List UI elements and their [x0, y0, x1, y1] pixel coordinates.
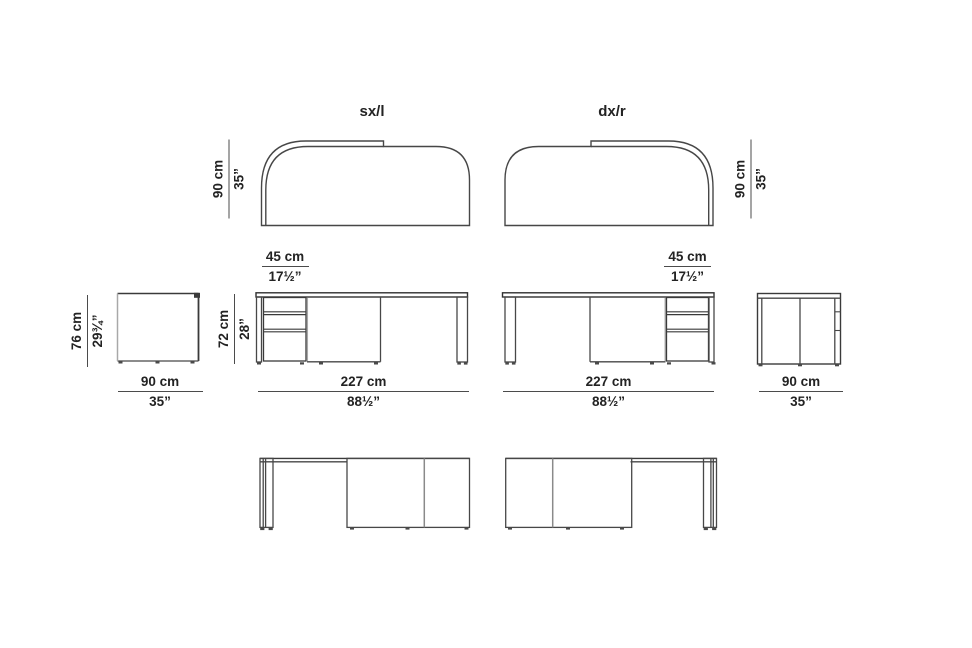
dim-cm: 72 cm — [217, 294, 234, 364]
dim-pedestal-right: 45 cm 17½” — [664, 250, 711, 284]
dim-cm: 76 cm — [70, 295, 87, 367]
view-side-left — [118, 293, 201, 364]
desk-top-inner-edge — [266, 147, 384, 226]
drawer-separations — [264, 312, 307, 332]
dim-cm: 227 cm — [258, 375, 469, 392]
dim-cm: 45 cm — [664, 250, 711, 267]
dim-pedestal-left: 45 cm 17½” — [262, 250, 309, 284]
desk-top-inner-edge — [591, 147, 709, 226]
view-side-right — [758, 294, 841, 367]
dim-inch: 17½” — [664, 267, 711, 284]
left-leg — [260, 458, 273, 527]
view-front-sxl — [256, 293, 468, 365]
dim-cm: 90 cm — [733, 139, 750, 218]
desktop — [256, 293, 468, 297]
drawer-profile-marks — [835, 312, 841, 331]
dim-cm: 90 cm — [212, 139, 229, 218]
desk-top-outline — [262, 141, 470, 226]
label-right-version: dx/r — [572, 103, 652, 120]
left-end-panel — [257, 297, 262, 362]
dim-desk-width-left: 227 cm 88½” — [258, 375, 469, 409]
dim-desk-height: 72 cm 28” — [217, 294, 251, 364]
dim-side-left-height: 76 cm 29¾” — [70, 295, 104, 367]
dim-inch: 88½” — [258, 392, 469, 409]
feet — [505, 362, 715, 364]
drawing-canvas: sx/l dx/r 90 cm 35” 90 cm 35” 76 cm 29¾”… — [0, 0, 972, 648]
desktop — [503, 293, 715, 297]
drawer-separations — [667, 312, 709, 332]
dim-top-left-depth: 90 cm 35” — [212, 139, 246, 218]
dim-cm: 90 cm — [759, 375, 843, 392]
dim-inch: 28” — [234, 294, 251, 364]
right-end-panel — [709, 297, 714, 362]
dim-inch: 35” — [759, 392, 843, 409]
left-leg — [505, 297, 516, 362]
dim-inch: 17½” — [262, 267, 309, 284]
view-top-sxl — [262, 141, 470, 226]
right-leg — [704, 458, 717, 527]
feet — [257, 362, 468, 364]
back-panel — [506, 458, 632, 527]
dim-cm: 227 cm — [503, 375, 714, 392]
dim-inch: 35” — [229, 139, 246, 218]
view-rear-sxl — [260, 458, 470, 530]
desktop-edge-tab — [194, 293, 200, 298]
view-rear-dxr — [506, 458, 717, 530]
dim-side-left-width: 90 cm 35” — [118, 375, 203, 409]
right-leg — [457, 297, 468, 362]
dim-inch: 35” — [118, 392, 203, 409]
dim-side-right-width: 90 cm 35” — [759, 375, 843, 409]
label-left-version: sx/l — [332, 103, 412, 120]
dim-cm: 45 cm — [262, 250, 309, 267]
desk-top-outline — [505, 141, 713, 226]
dim-cm: 90 cm — [118, 375, 203, 392]
technical-drawing — [0, 0, 972, 648]
back-panel — [347, 458, 470, 527]
dim-desk-width-right: 227 cm 88½” — [503, 375, 714, 409]
dim-top-right-depth: 90 cm 35” — [733, 139, 767, 218]
view-front-dxr — [503, 293, 716, 365]
dim-inch: 35” — [751, 139, 768, 218]
dim-inch: 88½” — [503, 392, 714, 409]
dim-inch: 29¾” — [88, 295, 105, 367]
view-top-dxr — [505, 141, 713, 226]
